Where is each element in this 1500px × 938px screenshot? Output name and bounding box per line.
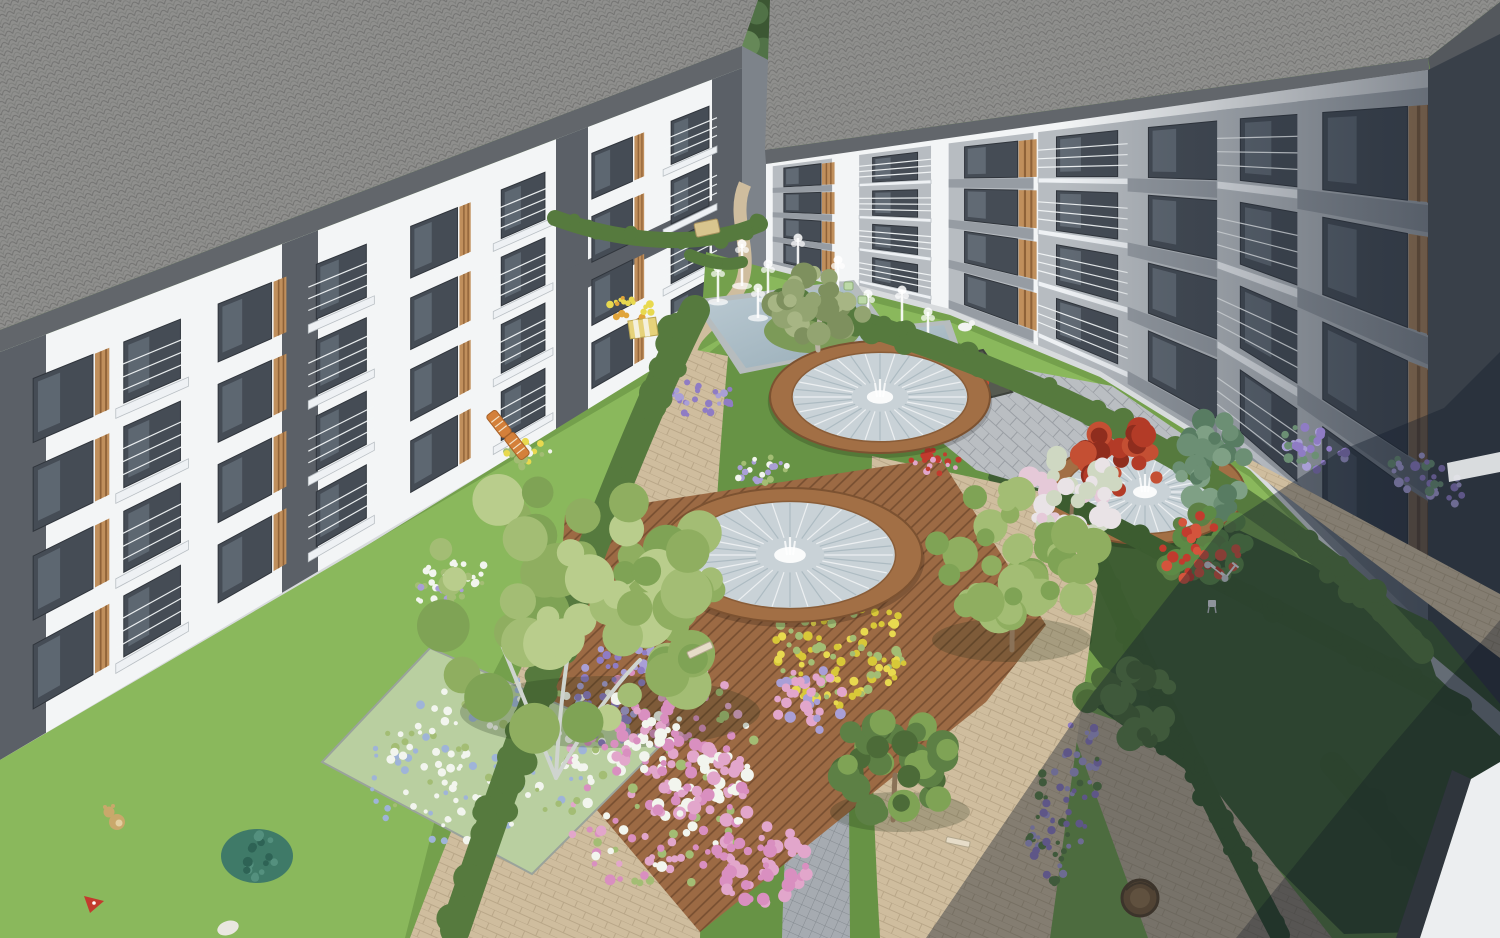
wood-louver <box>95 518 109 587</box>
wood-louver-line <box>463 412 464 463</box>
wood-louver-line <box>467 203 468 253</box>
hedge-blob <box>649 356 671 378</box>
white-cat-head <box>969 320 975 326</box>
window-reflection <box>128 420 149 478</box>
hedge-blob <box>894 334 915 355</box>
wood-louver-line <box>278 512 280 569</box>
hedge-blob <box>713 234 728 249</box>
wood-louver <box>634 132 644 180</box>
jet-mist <box>839 263 845 269</box>
jet-mist <box>831 263 837 269</box>
wood-louver-line <box>105 520 107 583</box>
window-reflection <box>38 460 60 521</box>
hedge-blob <box>695 253 703 261</box>
jet-mist <box>751 291 757 297</box>
wood-louver-line <box>467 272 468 322</box>
wood-louver-line <box>100 608 102 671</box>
hedge-blob <box>581 220 595 234</box>
wood-louver-line <box>278 279 280 336</box>
hedge-blob <box>641 379 658 396</box>
jet-mist <box>711 271 717 277</box>
jet-mist <box>921 315 927 321</box>
garden-chair <box>858 296 867 304</box>
hedge-blob <box>568 214 580 226</box>
window-reflection <box>222 378 242 433</box>
jet-mist <box>791 241 797 247</box>
hedge-blob <box>859 323 878 342</box>
hedge-blob <box>1016 372 1038 394</box>
wood-louver-line <box>463 205 464 255</box>
hedge-blob <box>731 257 743 269</box>
window-reflection <box>38 373 60 433</box>
wood-louver <box>459 340 470 396</box>
window-reflection <box>128 336 149 393</box>
hedge-blob <box>736 226 746 236</box>
hedge-blob <box>970 360 987 377</box>
wood-louver <box>459 202 470 257</box>
hedge-blob <box>1137 530 1151 544</box>
hedge-blob <box>625 433 644 452</box>
hedge-blob <box>1105 577 1121 593</box>
wood-louver-line <box>283 277 285 333</box>
wood-louver-line <box>641 133 642 177</box>
wood-louver-line <box>100 437 102 500</box>
jet-mist <box>799 241 805 247</box>
window-reflection <box>505 252 521 298</box>
window-reflection <box>595 150 610 192</box>
wood-louver-line <box>278 434 280 491</box>
teddy-ear <box>103 805 107 809</box>
hedge-blob <box>1041 377 1057 393</box>
wood-louver-line <box>638 257 639 302</box>
wood-louver <box>95 348 109 416</box>
hedge-blob <box>1085 403 1103 421</box>
wood-louver-line <box>467 410 468 460</box>
hedge-blob <box>623 229 636 242</box>
teddy-ear <box>111 804 115 808</box>
jet-mist <box>743 247 749 253</box>
wood-louver <box>274 431 287 493</box>
wood-louver-line <box>463 274 464 324</box>
jet-mist <box>903 293 909 299</box>
hedge-blob <box>676 239 686 249</box>
wood-louver <box>95 604 109 674</box>
wood-louver-line <box>641 255 642 300</box>
jet-mist <box>895 293 901 299</box>
hedge-blob <box>436 904 465 933</box>
wood-louver-line <box>283 432 285 489</box>
hedge-blob <box>893 321 909 337</box>
teddy-belly <box>116 820 123 827</box>
wood-louver <box>634 254 644 303</box>
wood-louver-line <box>463 343 464 394</box>
hedge-blob <box>673 313 693 333</box>
garden-chair <box>844 282 853 290</box>
wood-louver <box>274 277 287 338</box>
hedge-blob <box>669 360 686 377</box>
jet-mist <box>929 315 935 321</box>
render-viewport: Aerial rendering of a modern apartment c… <box>0 0 1500 938</box>
wood-louver <box>274 508 287 571</box>
hedge-blob <box>461 895 478 912</box>
window-reflection <box>414 292 431 341</box>
window-reflection <box>414 222 431 270</box>
hedge-blob <box>600 227 613 240</box>
jet-mist <box>761 267 767 273</box>
wood-louver <box>95 433 109 501</box>
wood-louver-line <box>283 355 285 412</box>
wood-louver-line <box>283 509 285 566</box>
hedge-blob <box>453 863 482 892</box>
scene-canvas: Aerial rendering of a modern apartment c… <box>0 0 1500 938</box>
window-reflection <box>320 334 339 386</box>
wood-louver-line <box>278 357 280 414</box>
facade-pier <box>282 230 318 604</box>
hedge-blob <box>950 348 965 363</box>
window-reflection <box>674 177 688 217</box>
jet-mist <box>869 297 875 303</box>
wood-louver-line <box>100 351 102 414</box>
window-reflection <box>674 118 688 158</box>
striped-canopy <box>628 317 658 339</box>
hedge-blob <box>1045 393 1059 407</box>
wood-louver-line <box>105 434 107 497</box>
jet-mist <box>735 247 741 253</box>
wood-louver-line <box>638 134 639 179</box>
wood-louver-line <box>105 349 107 411</box>
jet-mist <box>759 291 765 297</box>
jet-mist <box>719 271 725 277</box>
hedge-blob <box>714 257 723 266</box>
wood-louver-line <box>100 522 102 585</box>
window-reflection <box>505 186 521 231</box>
hedge-blob <box>496 766 526 796</box>
window-reflection <box>222 299 242 353</box>
wood-louver-line <box>467 341 468 391</box>
hedge-blob <box>475 853 492 870</box>
hedge-blob <box>483 797 501 815</box>
red-toy-dot <box>92 901 96 905</box>
hedge-blob <box>1107 596 1121 610</box>
wood-louver-line <box>105 605 107 668</box>
hedge-blob <box>750 214 764 228</box>
hedge-blob <box>994 366 1015 387</box>
hedge-blob <box>653 233 667 247</box>
jet-mist <box>769 267 775 273</box>
wood-louver <box>459 409 470 465</box>
wood-louver <box>459 271 470 326</box>
wood-louver <box>274 354 287 416</box>
window-reflection <box>320 260 339 311</box>
